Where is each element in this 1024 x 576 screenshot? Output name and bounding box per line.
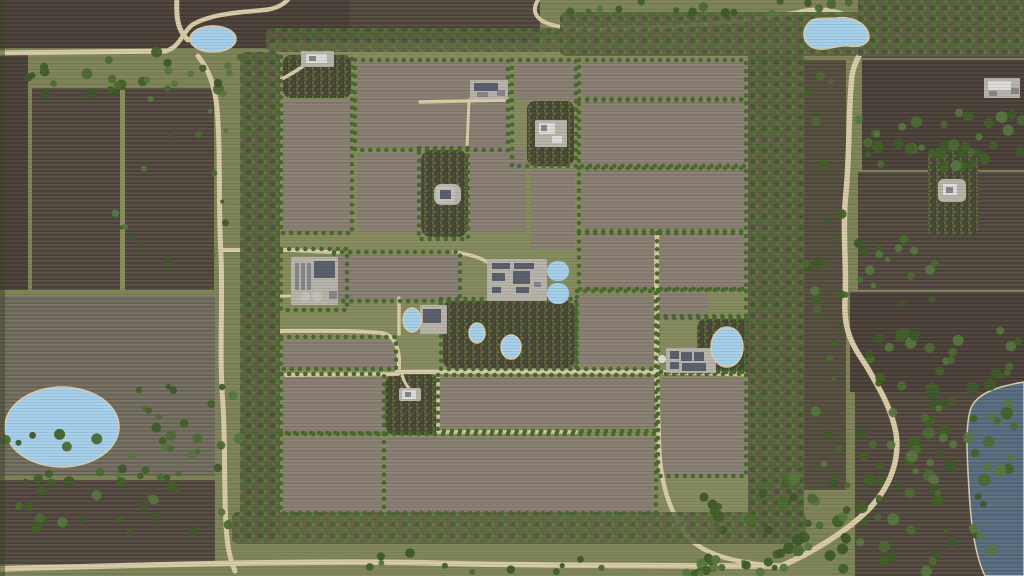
overlays xyxy=(0,0,1024,576)
scanline-overlay xyxy=(0,0,1024,576)
map-canvas xyxy=(0,0,1024,576)
map-screenshot xyxy=(0,0,1024,576)
